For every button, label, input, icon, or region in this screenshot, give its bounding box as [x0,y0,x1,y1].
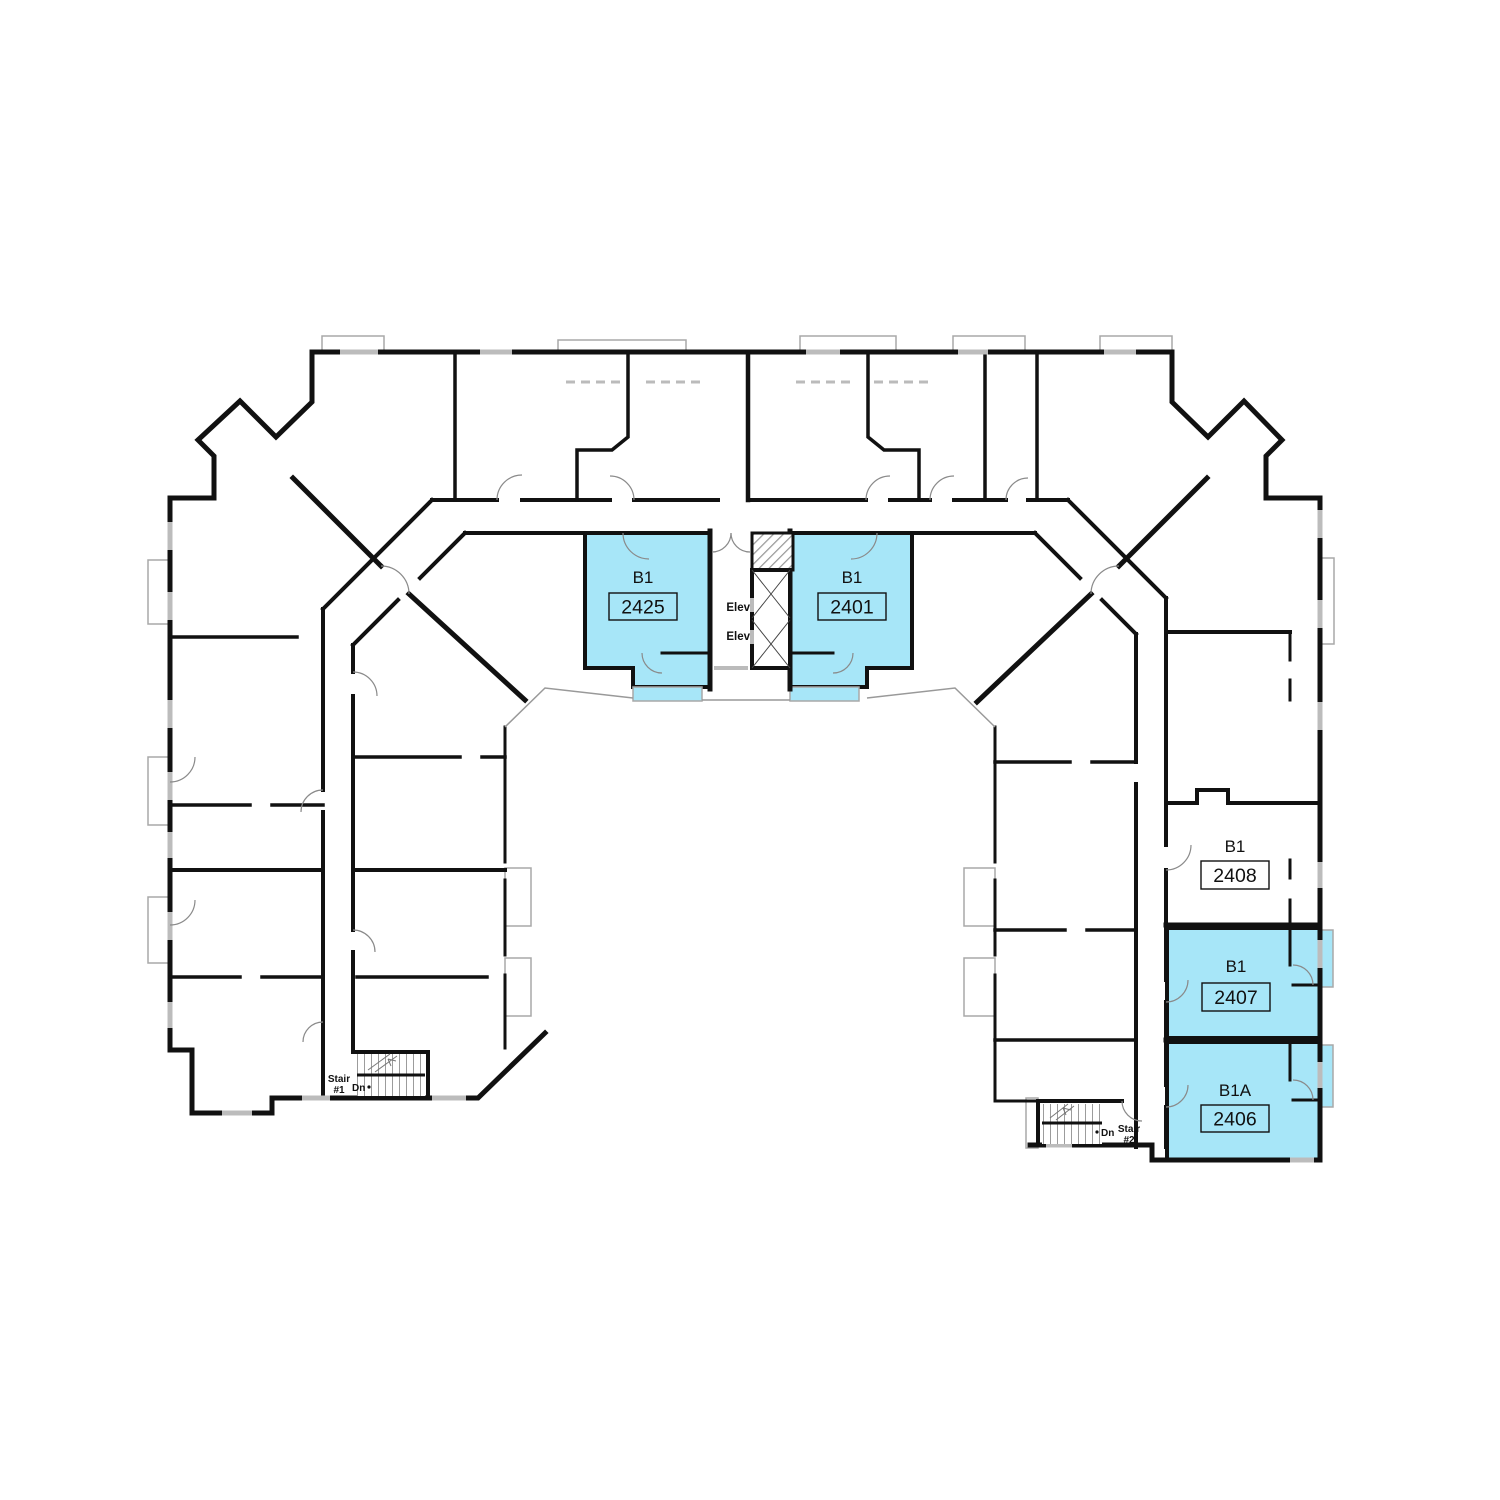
unit-2406-number: 2406 [1213,1109,1256,1131]
page-background [0,0,1500,1500]
stair-1-name: Stair [328,1074,350,1085]
stair-1-direction-dot [367,1085,370,1088]
unit-2401-type-label: B1 [842,568,863,587]
stair-2-name: Stair [1118,1124,1140,1135]
stair-1-direction: Dn [352,1083,365,1094]
unit-2407-type-label: B1 [1226,957,1247,976]
elevator-label-2: Elev [726,631,750,643]
unit-2425-balcony [633,687,702,701]
unit-2401-number: 2401 [830,597,873,619]
unit-2425-type-label: B1 [633,568,654,587]
stair-2-number: #2 [1123,1135,1135,1146]
shaft-hatch-area [752,533,793,570]
unit-2408-type-label: B1 [1225,837,1246,856]
unit-2406-type-label: B1A [1219,1081,1252,1100]
stair-2-direction-dot [1095,1130,1098,1133]
elevator-shaft [752,570,790,668]
stair-2-direction: Dn [1101,1128,1114,1139]
unit-2425-number: 2425 [621,597,665,619]
unit-2407-number: 2407 [1214,987,1257,1009]
unit-2408-number: 2408 [1213,865,1256,887]
floor-plan-svg: Elev Elev Stair #1 Dn Stair #2 Dn [0,0,1500,1500]
elevator-label-1: Elev [726,602,750,614]
stair-1-number: #1 [333,1085,345,1096]
unit-2401-balcony [790,687,859,701]
